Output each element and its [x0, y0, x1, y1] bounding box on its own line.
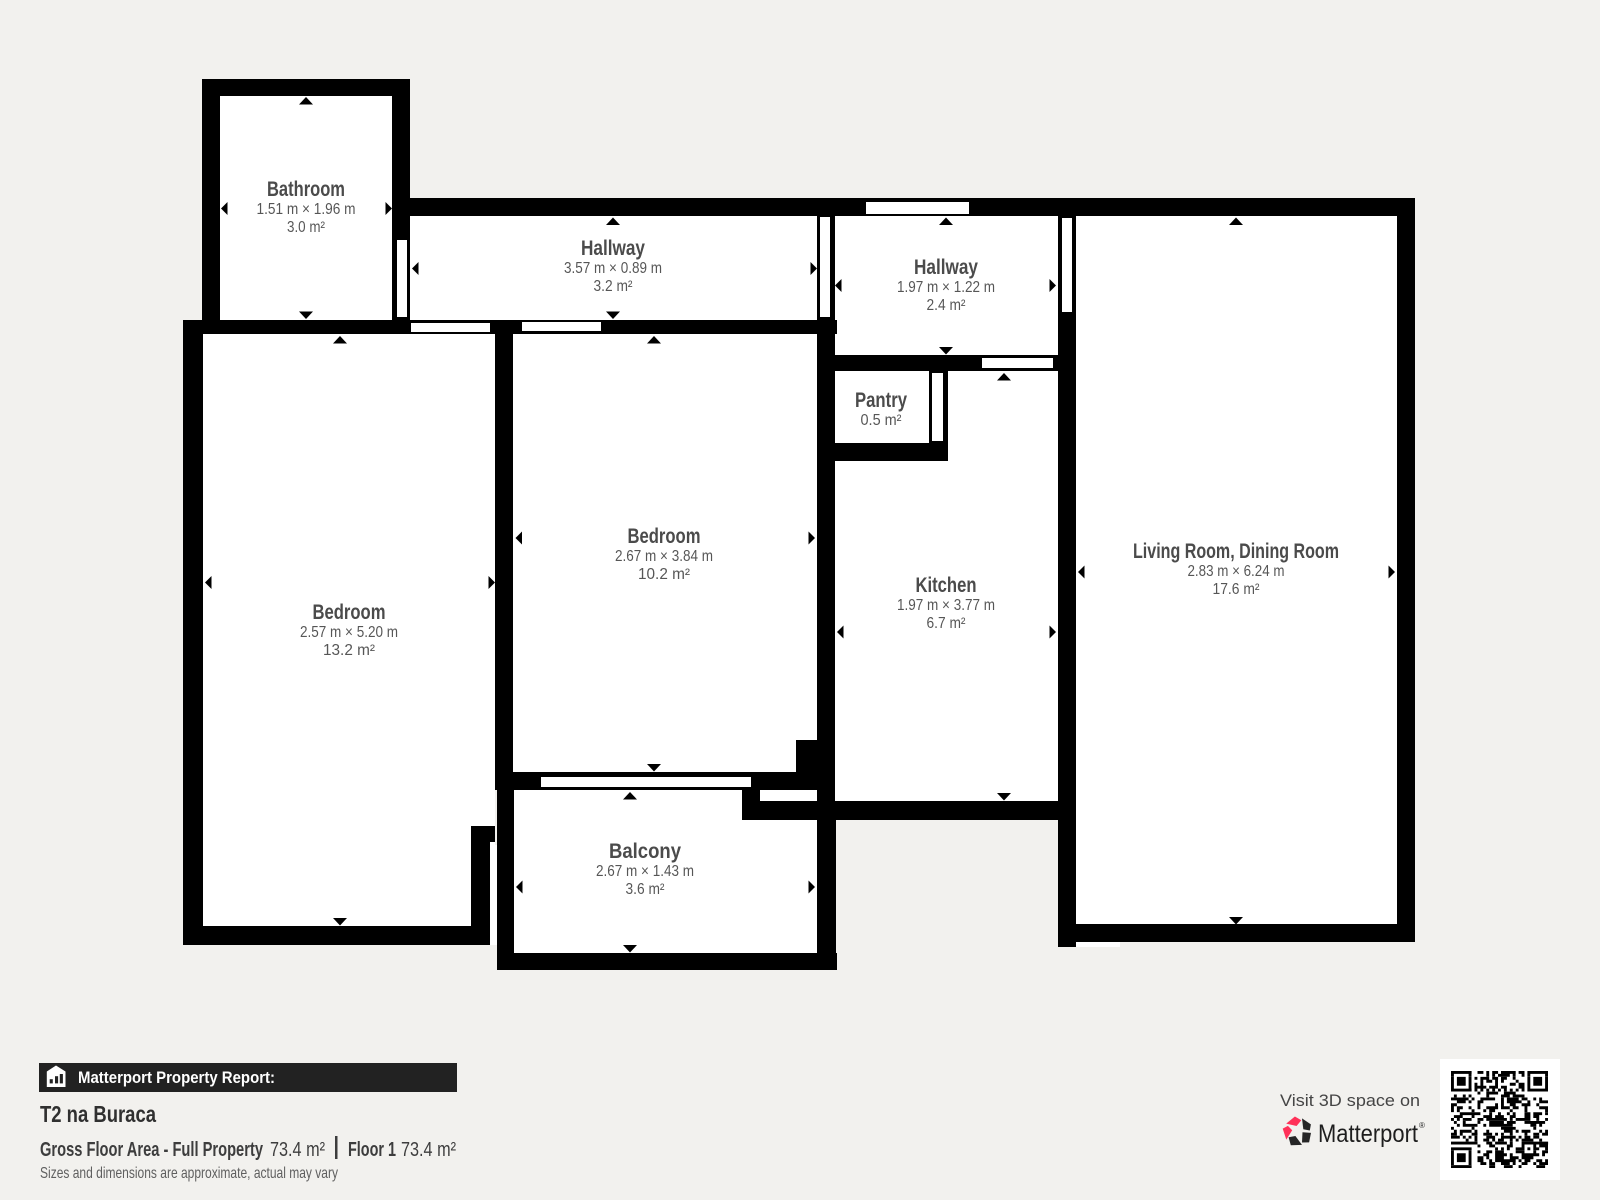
svg-text:17.6 m²: 17.6 m² — [1213, 581, 1260, 598]
svg-text:Hallway: Hallway — [914, 256, 978, 279]
svg-text:®: ® — [1419, 1121, 1425, 1130]
svg-text:3.57 m × 0.89 m: 3.57 m × 0.89 m — [564, 260, 662, 277]
svg-text:1.51 m × 1.96 m: 1.51 m × 1.96 m — [257, 201, 356, 218]
svg-text:73.4 m²: 73.4 m² — [401, 1139, 456, 1161]
svg-text:T2 na Buraca: T2 na Buraca — [40, 1101, 156, 1127]
svg-text:Bathroom: Bathroom — [267, 178, 345, 201]
svg-text:3.2 m²: 3.2 m² — [594, 278, 633, 295]
svg-text:1.97 m × 3.77 m: 1.97 m × 3.77 m — [897, 597, 995, 614]
svg-text:Sizes and dimensions are appro: Sizes and dimensions are approximate, ac… — [40, 1165, 338, 1182]
svg-text:Gross Floor Area - Full Proper: Gross Floor Area - Full Property — [40, 1139, 264, 1161]
svg-text:Matterport: Matterport — [1318, 1120, 1418, 1148]
svg-text:3.0 m²: 3.0 m² — [287, 219, 325, 236]
svg-text:6.7 m²: 6.7 m² — [927, 615, 966, 632]
svg-text:2.83 m × 6.24 m: 2.83 m × 6.24 m — [1188, 563, 1285, 580]
svg-text:2.4 m²: 2.4 m² — [927, 297, 966, 314]
svg-text:Bedroom: Bedroom — [628, 525, 701, 548]
svg-text:Hallway: Hallway — [581, 237, 645, 260]
svg-text:Pantry: Pantry — [855, 389, 907, 412]
svg-text:2.67 m × 3.84 m: 2.67 m × 3.84 m — [615, 548, 713, 565]
svg-text:Matterport Property Report:: Matterport Property Report: — [78, 1068, 275, 1087]
svg-text:Visit 3D space on: Visit 3D space on — [1280, 1091, 1420, 1110]
svg-text:Bedroom: Bedroom — [313, 601, 386, 624]
svg-text:2.57 m × 5.20 m: 2.57 m × 5.20 m — [300, 624, 398, 641]
svg-text:1.97 m × 1.22 m: 1.97 m × 1.22 m — [897, 279, 995, 296]
svg-text:Kitchen: Kitchen — [916, 574, 977, 597]
svg-text:13.2 m²: 13.2 m² — [323, 642, 375, 659]
svg-text:10.2 m²: 10.2 m² — [638, 566, 690, 583]
svg-text:2.67 m × 1.43 m: 2.67 m × 1.43 m — [596, 863, 694, 880]
svg-text:73.4 m²: 73.4 m² — [270, 1139, 325, 1161]
svg-text:Living Room, Dining Room: Living Room, Dining Room — [1133, 540, 1339, 563]
svg-text:Balcony: Balcony — [609, 840, 681, 863]
svg-text:Floor 1: Floor 1 — [348, 1139, 396, 1161]
svg-text:0.5 m²: 0.5 m² — [861, 412, 902, 429]
svg-text:3.6 m²: 3.6 m² — [626, 881, 665, 898]
